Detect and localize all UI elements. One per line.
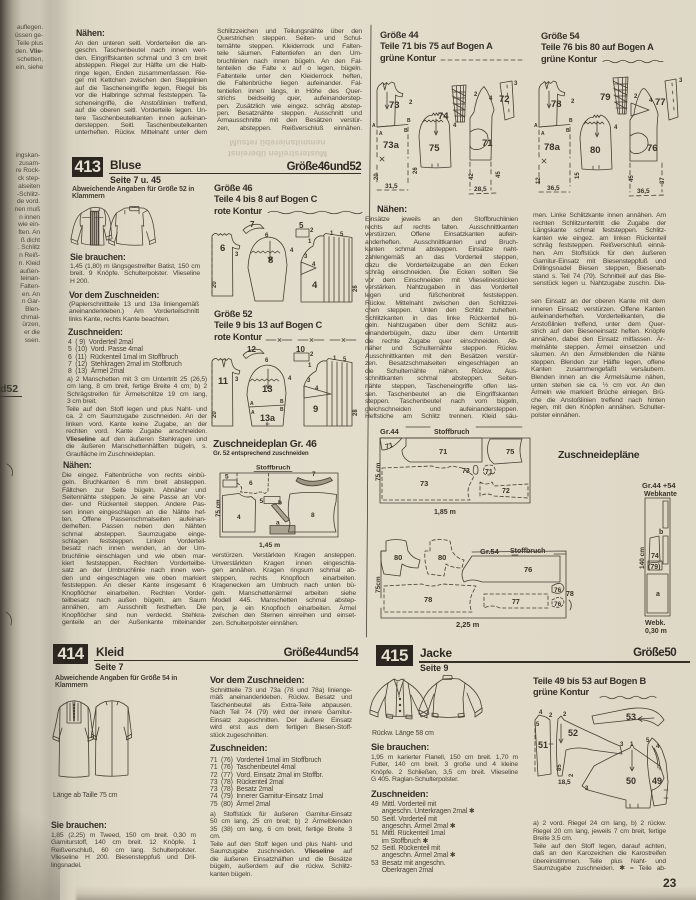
svg-text:78a: 78a [544, 142, 561, 153]
svg-text:80: 80 [590, 145, 601, 156]
svg-text:Gr.44 +54: Gr.44 +54 [642, 481, 676, 490]
svg-text:28: 28 [353, 409, 359, 416]
svg-text:b: b [278, 500, 282, 507]
svg-text:(79): (79) [648, 564, 660, 571]
svg-text:6: 6 [249, 480, 253, 487]
svg-text:b: b [659, 529, 663, 536]
svg-text:3: 3 [235, 252, 239, 258]
svg-text:4: 4 [290, 248, 294, 254]
svg-text:1: 1 [308, 239, 312, 245]
svg-text:2: 2 [409, 100, 413, 106]
svg-text:Webk.: Webk. [645, 620, 666, 627]
svg-text:1: 1 [308, 363, 312, 369]
svg-text:6: 6 [265, 358, 269, 364]
svg-text:6: 6 [220, 243, 225, 254]
svg-text:53: 53 [626, 712, 636, 722]
svg-text:42: 42 [469, 173, 475, 180]
svg-text:76: 76 [647, 143, 658, 154]
svg-text:7: 7 [250, 220, 255, 229]
svg-text:15: 15 [575, 172, 581, 179]
svg-text:4: 4 [312, 280, 318, 291]
svg-text:3: 3 [620, 742, 624, 748]
svg-text:50: 50 [626, 776, 636, 786]
svg-text:75 cm: 75 cm [215, 499, 222, 517]
svg-text:71: 71 [439, 447, 447, 456]
svg-text:5: 5 [225, 474, 229, 481]
svg-text:B: B [280, 399, 284, 405]
svg-text:A: A [372, 123, 376, 129]
svg-text:36,5: 36,5 [547, 185, 560, 192]
svg-text:78: 78 [551, 99, 562, 110]
svg-text:5: 5 [646, 738, 650, 744]
svg-text:20: 20 [212, 411, 218, 418]
svg-text:4: 4 [489, 96, 493, 102]
svg-text:28,5: 28,5 [474, 186, 487, 193]
svg-text:51: 51 [538, 740, 548, 750]
svg-text:73: 73 [420, 479, 428, 488]
svg-text:36,5: 36,5 [637, 188, 650, 195]
svg-text:37: 37 [660, 177, 666, 184]
svg-text:2: 2 [563, 712, 567, 718]
svg-text:80: 80 [394, 553, 402, 562]
svg-text:72: 72 [502, 488, 510, 495]
svg-text:75: 75 [429, 143, 440, 154]
svg-text:76: 76 [524, 565, 532, 574]
svg-text:10: 10 [296, 345, 305, 354]
svg-text:5: 5 [260, 498, 264, 505]
svg-text:2: 2 [310, 352, 314, 358]
svg-text:71: 71 [385, 442, 394, 451]
svg-text:4: 4 [453, 123, 457, 129]
svg-text:3: 3 [304, 254, 308, 260]
svg-text:9: 9 [313, 404, 318, 415]
svg-text:45: 45 [629, 175, 635, 182]
svg-text:2: 2 [310, 228, 314, 234]
svg-text:4: 4 [237, 514, 241, 521]
svg-text:20: 20 [374, 173, 380, 180]
svg-text:B: B [407, 118, 411, 124]
svg-text:A: A [541, 131, 545, 137]
svg-text:5: 5 [343, 357, 347, 363]
svg-text:77: 77 [512, 599, 520, 606]
svg-text:26: 26 [353, 285, 359, 292]
svg-text:140 cm: 140 cm [639, 547, 646, 569]
svg-text:13: 13 [262, 384, 273, 395]
svg-text:52: 52 [568, 728, 578, 738]
svg-text:31,5: 31,5 [385, 183, 398, 190]
svg-text:3: 3 [679, 78, 683, 84]
svg-text:8: 8 [311, 512, 315, 519]
svg-text:49: 49 [652, 776, 662, 786]
svg-text:75cm: 75cm [375, 576, 382, 593]
svg-text:73a: 73a [383, 140, 400, 151]
svg-text:2: 2 [569, 773, 575, 777]
svg-text:3: 3 [514, 81, 518, 87]
svg-text:78: 78 [566, 591, 574, 598]
svg-text:73: 73 [462, 468, 470, 475]
svg-text:Stoffbruch: Stoffbruch [256, 465, 290, 472]
svg-text:A: A [250, 401, 254, 407]
svg-text:2,25 m: 2,25 m [456, 620, 480, 629]
svg-text:1: 1 [330, 231, 334, 237]
svg-text:12: 12 [536, 177, 542, 184]
svg-text:76: 76 [554, 601, 562, 608]
svg-text:85: 85 [557, 764, 563, 771]
svg-text:4: 4 [312, 262, 316, 268]
svg-text:4: 4 [614, 125, 618, 131]
svg-text:3: 3 [585, 786, 589, 792]
svg-text:45: 45 [496, 171, 502, 178]
svg-text:71: 71 [482, 138, 493, 149]
svg-text:Gr.44: Gr.44 [380, 427, 400, 436]
svg-text:4: 4 [288, 376, 292, 382]
svg-text:B: B [404, 128, 408, 134]
svg-text:2: 2 [571, 99, 575, 105]
svg-text:18,5: 18,5 [558, 779, 571, 786]
svg-text:1: 1 [333, 356, 337, 362]
svg-text:11: 11 [218, 376, 229, 387]
svg-text:71: 71 [485, 469, 493, 476]
svg-text:1,45 m: 1,45 m [259, 542, 280, 549]
svg-text:5: 5 [340, 232, 344, 238]
svg-text:5: 5 [536, 722, 540, 728]
svg-text:0,30 m: 0,30 m [645, 628, 667, 635]
svg-text:80: 80 [438, 553, 446, 562]
svg-text:75: 75 [506, 447, 514, 456]
svg-text:13a: 13a [260, 413, 276, 423]
svg-text:7: 7 [312, 471, 316, 478]
svg-text:4: 4 [315, 386, 319, 392]
svg-text:6: 6 [265, 233, 269, 239]
svg-text:73: 73 [389, 100, 400, 111]
svg-text:A: A [534, 123, 538, 129]
svg-text:B: B [280, 407, 284, 413]
svg-text:3: 3 [235, 377, 239, 383]
svg-text:5: 5 [299, 221, 304, 230]
svg-text:B: B [569, 118, 573, 124]
svg-text:A: A [379, 131, 383, 137]
svg-text:Webkante: Webkante [644, 491, 677, 498]
svg-text:20: 20 [212, 281, 218, 288]
svg-text:3: 3 [307, 378, 311, 384]
svg-text:8: 8 [268, 255, 273, 266]
svg-text:a: a [276, 520, 280, 527]
svg-text:74: 74 [438, 111, 449, 122]
svg-text:77: 77 [655, 97, 666, 108]
svg-text:78: 78 [424, 595, 432, 604]
svg-text:1,85 m: 1,85 m [434, 509, 456, 516]
svg-text:4: 4 [539, 710, 543, 716]
svg-text:Stoffbruch: Stoffbruch [434, 429, 469, 436]
svg-text:72: 72 [499, 94, 510, 105]
svg-text:79: 79 [600, 92, 611, 103]
svg-text:26: 26 [413, 167, 419, 174]
svg-text:a: a [656, 591, 660, 598]
svg-text:12: 12 [247, 345, 256, 354]
svg-text:74: 74 [651, 553, 659, 560]
svg-text:B: B [566, 128, 570, 134]
svg-text:76: 76 [554, 587, 562, 594]
svg-text:2: 2 [549, 713, 553, 719]
svg-text:A: A [251, 410, 255, 416]
svg-text:75 cm: 75 cm [375, 462, 382, 481]
